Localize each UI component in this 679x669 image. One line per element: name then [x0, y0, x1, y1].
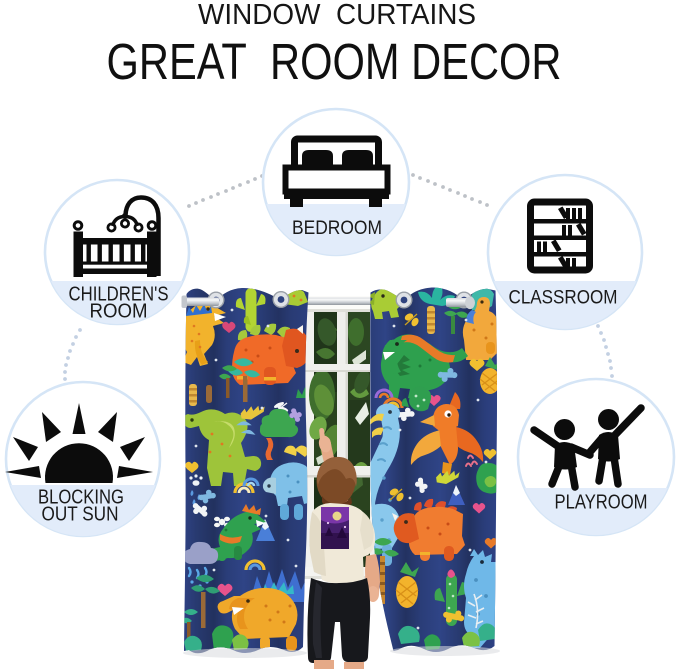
- svg-text:ROOM: ROOM: [90, 301, 148, 323]
- svg-text:WINDOW CURTAINS: WINDOW CURTAINS: [198, 0, 476, 31]
- svg-text:OUT SUN: OUT SUN: [42, 503, 119, 526]
- svg-text:GREAT ROOM DECOR: GREAT ROOM DECOR: [107, 33, 562, 90]
- svg-text:BEDROOM: BEDROOM: [292, 217, 382, 239]
- svg-text:CLASSROOM: CLASSROOM: [509, 287, 618, 309]
- svg-text:PLAYROOM: PLAYROOM: [555, 491, 648, 514]
